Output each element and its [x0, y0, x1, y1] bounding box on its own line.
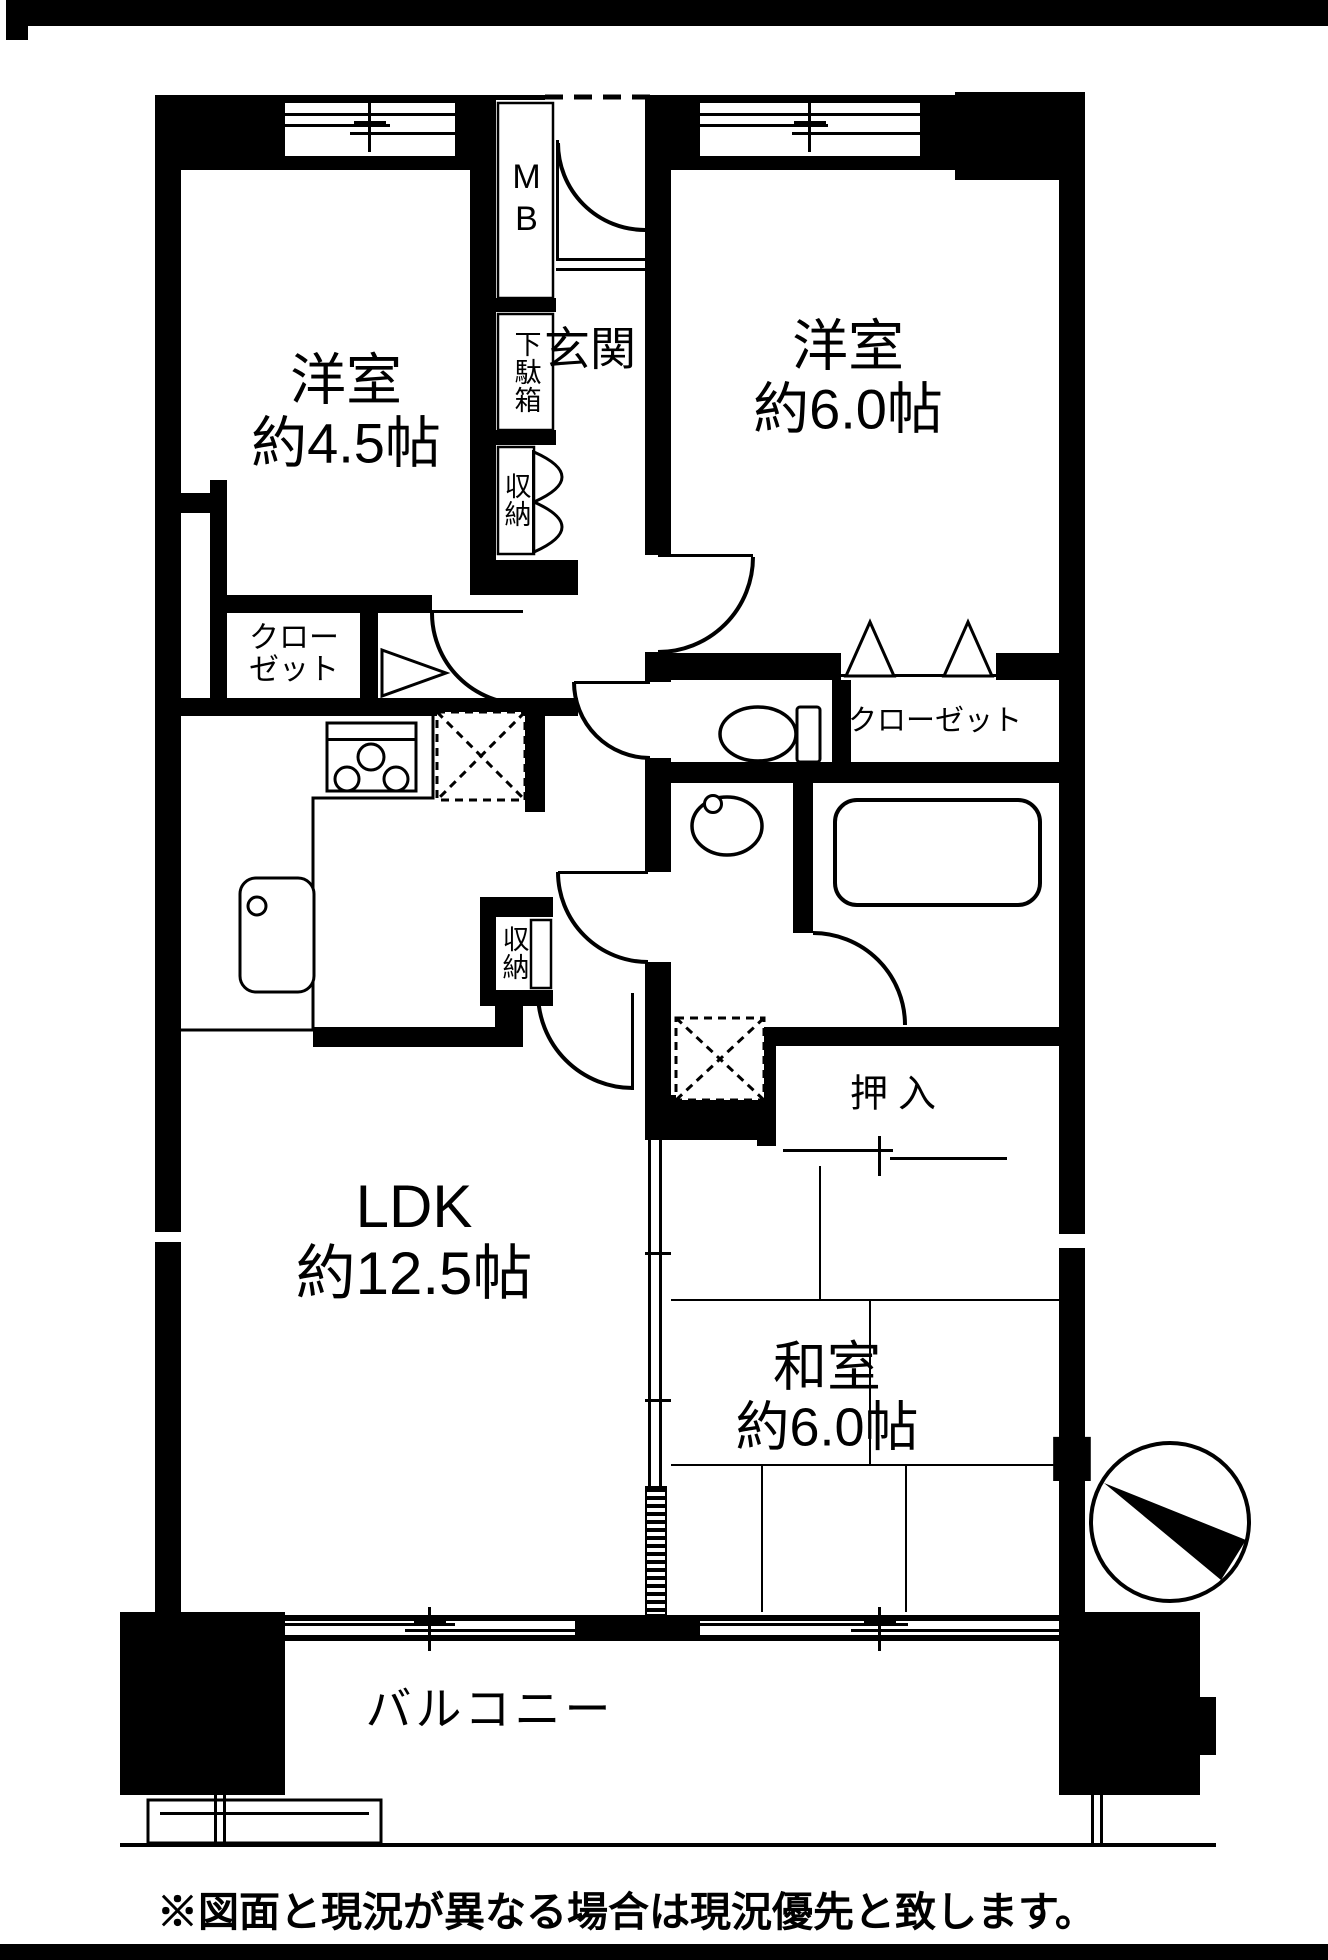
shoe-cabinet-label: 下駄箱 [507, 330, 546, 414]
balcony-railing [120, 1795, 1216, 1847]
window-west-room-small [285, 95, 455, 170]
window-west-room-large [700, 95, 920, 170]
stove-fixture [327, 723, 416, 791]
room-size: 約12.5帖 [296, 1240, 533, 1307]
wall-gap-marks [155, 1232, 1085, 1248]
window-japanese-balcony [700, 1607, 1059, 1651]
room-label-japanese: 和室 約6.0帖 [735, 1338, 918, 1459]
closet-small-line1: クロー [249, 623, 339, 655]
north-compass-icon [1091, 1443, 1249, 1601]
entrance-door-swing [545, 97, 650, 271]
kitchen-storage-label: 収納 [495, 925, 534, 981]
bathtub-fixture [835, 800, 1040, 905]
oshiire-label: 押入 [850, 1074, 946, 1117]
kitchen-storage-door-flap [531, 920, 551, 988]
kitchen-sink-fixture [240, 878, 314, 992]
refrigerator-space [437, 712, 525, 800]
room-name: 和室 [735, 1338, 918, 1398]
hall-storage-label: 収納 [497, 472, 536, 528]
room-size: 約6.0帖 [753, 378, 943, 441]
room-name: LDK [296, 1173, 533, 1240]
room-label-western-small: 洋室 約4.5帖 [251, 349, 441, 474]
toilet-fixture [720, 707, 820, 762]
closet-large-accordion-door [841, 622, 996, 680]
washbasin-fixture [692, 796, 762, 856]
top-border-bar [6, 0, 1328, 40]
window-ldk-balcony [285, 1607, 575, 1651]
meter-box-label: MB [507, 158, 546, 242]
oshiire-sliding-door [783, 1136, 1007, 1176]
floor-plan-drawing [0, 0, 1328, 1960]
room-label-ldk: LDK 約12.5帖 [296, 1173, 533, 1307]
room-name: 洋室 [251, 349, 441, 412]
closet-small-line2: ゼット [249, 655, 339, 687]
room-size: 約6.0帖 [735, 1398, 918, 1458]
room-name: 洋室 [753, 315, 943, 378]
closet-large-label: クローゼット [848, 705, 1022, 737]
balcony-label: バルコニー [365, 1684, 614, 1736]
room-label-western-large: 洋室 約6.0帖 [753, 315, 943, 440]
entrance-label: 玄関 [544, 324, 636, 376]
closet-small-door-pointer [382, 650, 446, 696]
bottom-border-bar [0, 1944, 1328, 1960]
ldk-japanese-sliding-partition [645, 1140, 671, 1615]
disclaimer-note: ※図面と現況が異なる場合は現況優先と致します。 [157, 1878, 1096, 1938]
north-label: N [1049, 1424, 1095, 1496]
floor-plan-page: 洋室 約4.5帖 洋室 約6.0帖 LDK 約12.5帖 和室 約6.0帖 玄関… [0, 0, 1328, 1960]
washing-machine-space [676, 1018, 764, 1100]
room-size: 約4.5帖 [251, 412, 441, 475]
closet-small-label: クロー ゼット [249, 623, 339, 688]
